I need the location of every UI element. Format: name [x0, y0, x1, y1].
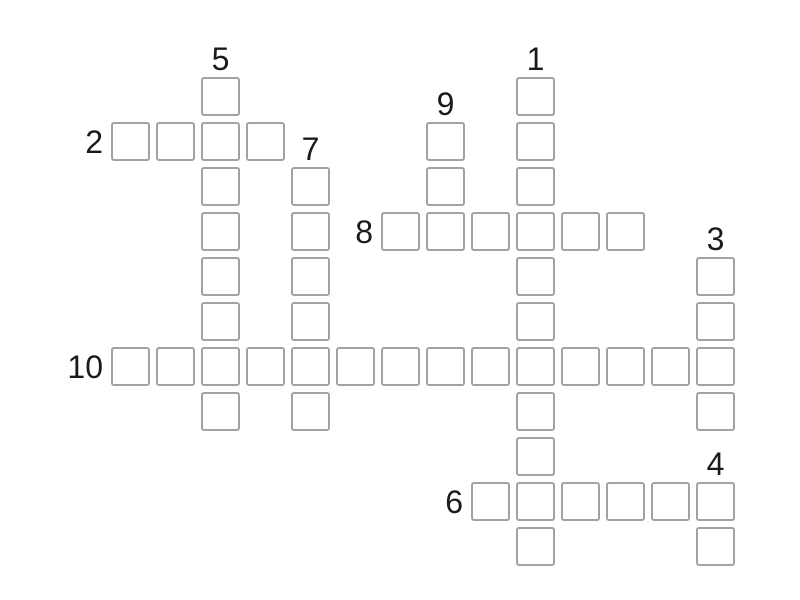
crossword-cell-5-5[interactable]	[291, 257, 330, 296]
crossword-cell-3-5[interactable]	[201, 257, 240, 296]
crossword-cell-5-8[interactable]	[291, 392, 330, 431]
crossword-cell-10-11[interactable]	[516, 527, 555, 566]
crossword-cell-1-2[interactable]	[111, 122, 150, 161]
crossword-cell-10-4[interactable]	[516, 212, 555, 251]
crossword-cell-7-7[interactable]	[381, 347, 420, 386]
crossword-cell-10-8[interactable]	[516, 392, 555, 431]
crossword-cell-3-6[interactable]	[201, 302, 240, 341]
crossword-cell-4-7[interactable]	[246, 347, 285, 386]
crossword-cell-10-6[interactable]	[516, 302, 555, 341]
crossword-cell-3-7[interactable]	[201, 347, 240, 386]
crossword-cell-8-2[interactable]	[426, 122, 465, 161]
crossword-cell-14-5[interactable]	[696, 257, 735, 296]
crossword-cell-11-7[interactable]	[561, 347, 600, 386]
clue-number-1: 1	[476, 43, 596, 75]
crossword-cell-5-3[interactable]	[291, 167, 330, 206]
crossword-cell-14-8[interactable]	[696, 392, 735, 431]
clue-number-9: 9	[386, 88, 506, 120]
crossword-cell-10-5[interactable]	[516, 257, 555, 296]
crossword-cell-14-6[interactable]	[696, 302, 735, 341]
clue-number-10: 10	[0, 351, 103, 383]
crossword-cell-11-4[interactable]	[561, 212, 600, 251]
crossword-cell-3-8[interactable]	[201, 392, 240, 431]
crossword-cell-10-3[interactable]	[516, 167, 555, 206]
crossword-cell-8-7[interactable]	[426, 347, 465, 386]
clue-number-3: 3	[656, 223, 776, 255]
crossword-grid: 51297831064	[0, 0, 800, 600]
crossword-cell-3-3[interactable]	[201, 167, 240, 206]
puzzle-canvas: 51297831064	[0, 0, 800, 600]
crossword-cell-10-7[interactable]	[516, 347, 555, 386]
crossword-cell-9-10[interactable]	[471, 482, 510, 521]
crossword-cell-10-1[interactable]	[516, 77, 555, 116]
crossword-cell-12-4[interactable]	[606, 212, 645, 251]
crossword-cell-5-6[interactable]	[291, 302, 330, 341]
crossword-cell-1-7[interactable]	[111, 347, 150, 386]
crossword-cell-2-7[interactable]	[156, 347, 195, 386]
crossword-cell-9-4[interactable]	[471, 212, 510, 251]
crossword-cell-9-7[interactable]	[471, 347, 510, 386]
crossword-cell-8-3[interactable]	[426, 167, 465, 206]
crossword-cell-10-2[interactable]	[516, 122, 555, 161]
crossword-cell-12-10[interactable]	[606, 482, 645, 521]
crossword-cell-12-7[interactable]	[606, 347, 645, 386]
crossword-cell-3-2[interactable]	[201, 122, 240, 161]
crossword-cell-5-4[interactable]	[291, 212, 330, 251]
crossword-cell-7-4[interactable]	[381, 212, 420, 251]
crossword-cell-6-7[interactable]	[336, 347, 375, 386]
crossword-cell-13-10[interactable]	[651, 482, 690, 521]
crossword-cell-5-7[interactable]	[291, 347, 330, 386]
clue-number-4: 4	[656, 448, 776, 480]
crossword-cell-2-2[interactable]	[156, 122, 195, 161]
crossword-cell-10-9[interactable]	[516, 437, 555, 476]
crossword-cell-14-11[interactable]	[696, 527, 735, 566]
crossword-cell-8-4[interactable]	[426, 212, 465, 251]
clue-number-6: 6	[343, 486, 463, 518]
crossword-cell-10-10[interactable]	[516, 482, 555, 521]
crossword-cell-13-7[interactable]	[651, 347, 690, 386]
crossword-cell-14-10[interactable]	[696, 482, 735, 521]
crossword-cell-14-7[interactable]	[696, 347, 735, 386]
crossword-cell-11-10[interactable]	[561, 482, 600, 521]
crossword-cell-4-2[interactable]	[246, 122, 285, 161]
crossword-cell-3-1[interactable]	[201, 77, 240, 116]
clue-number-5: 5	[161, 43, 281, 75]
crossword-cell-3-4[interactable]	[201, 212, 240, 251]
clue-number-2: 2	[0, 126, 103, 158]
